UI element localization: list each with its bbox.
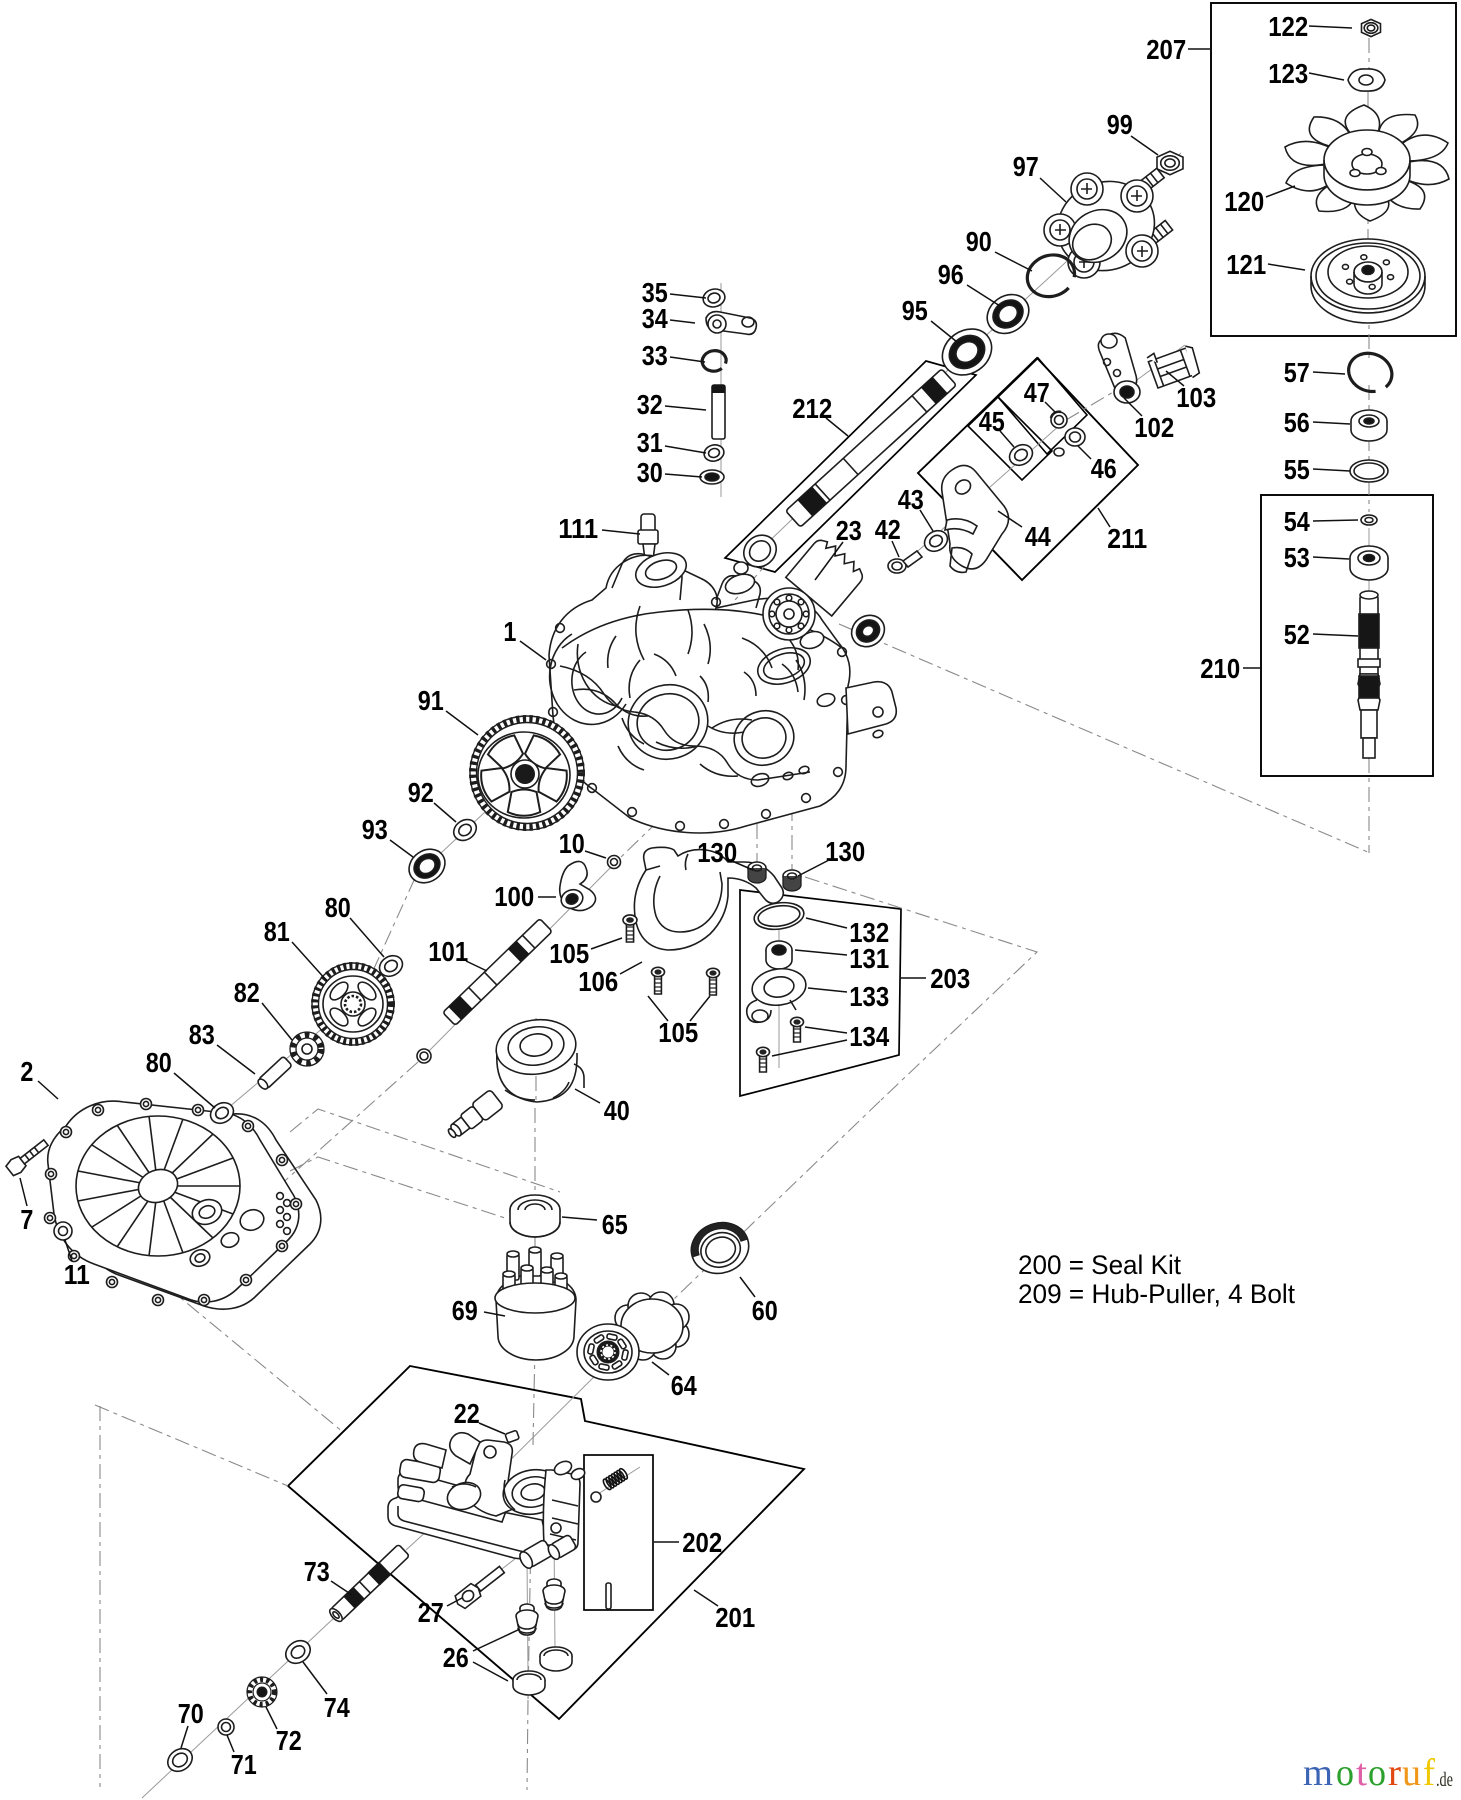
svg-text:200 = Seal Kit: 200 = Seal Kit: [1018, 1250, 1181, 1280]
svg-text:96: 96: [938, 259, 964, 290]
svg-text:7: 7: [20, 1204, 33, 1235]
svg-text:131: 131: [849, 943, 889, 974]
svg-text:m: m: [1303, 1752, 1333, 1794]
svg-text:130: 130: [825, 836, 865, 867]
svg-text:92: 92: [408, 777, 434, 808]
svg-text:69: 69: [452, 1295, 478, 1326]
svg-text:73: 73: [304, 1556, 330, 1587]
svg-text:32: 32: [637, 389, 663, 420]
svg-text:56: 56: [1284, 407, 1310, 438]
svg-text:55: 55: [1284, 454, 1310, 485]
svg-text:65: 65: [602, 1209, 628, 1240]
svg-text:46: 46: [1091, 453, 1117, 484]
svg-text:100: 100: [494, 881, 534, 912]
svg-text:120: 120: [1224, 186, 1264, 217]
svg-text:102: 102: [1134, 412, 1174, 443]
svg-text:106: 106: [578, 966, 618, 997]
svg-text:111: 111: [558, 513, 598, 544]
svg-text:91: 91: [418, 685, 444, 716]
svg-text:f: f: [1423, 1752, 1435, 1794]
svg-text:80: 80: [146, 1047, 172, 1078]
svg-text:64: 64: [671, 1370, 697, 1401]
svg-text:201: 201: [715, 1602, 755, 1633]
svg-text:212: 212: [792, 393, 832, 424]
svg-text:133: 133: [849, 981, 889, 1012]
svg-text:103: 103: [1176, 382, 1216, 413]
svg-text:71: 71: [231, 1749, 257, 1780]
svg-text:22: 22: [454, 1398, 480, 1429]
svg-text:80: 80: [325, 892, 351, 923]
svg-text:82: 82: [234, 977, 260, 1008]
svg-text:.de: .de: [1436, 1769, 1453, 1791]
svg-text:70: 70: [178, 1698, 204, 1729]
svg-text:54: 54: [1284, 506, 1310, 537]
svg-text:44: 44: [1025, 521, 1051, 552]
svg-text:130: 130: [697, 837, 737, 868]
svg-text:211: 211: [1107, 523, 1147, 554]
svg-text:209 = Hub-Puller, 4 Bolt: 209 = Hub-Puller, 4 Bolt: [1018, 1279, 1295, 1309]
svg-text:53: 53: [1284, 542, 1310, 573]
svg-text:101: 101: [428, 936, 468, 967]
svg-text:93: 93: [362, 814, 388, 845]
svg-text:99: 99: [1107, 109, 1133, 140]
svg-text:33: 33: [642, 340, 668, 371]
svg-text:1: 1: [503, 616, 516, 647]
svg-text:34: 34: [642, 303, 668, 334]
svg-text:121: 121: [1226, 249, 1266, 280]
svg-text:42: 42: [875, 514, 901, 545]
svg-text:57: 57: [1284, 357, 1310, 388]
svg-text:72: 72: [276, 1725, 302, 1756]
svg-text:90: 90: [966, 226, 992, 257]
svg-text:74: 74: [324, 1692, 350, 1723]
svg-text:83: 83: [189, 1019, 215, 1050]
svg-text:r: r: [1388, 1752, 1401, 1794]
svg-text:27: 27: [418, 1597, 444, 1628]
svg-text:81: 81: [264, 916, 290, 947]
svg-text:2: 2: [20, 1056, 33, 1087]
svg-text:26: 26: [443, 1642, 469, 1673]
svg-text:202: 202: [682, 1527, 722, 1558]
svg-text:t: t: [1356, 1752, 1367, 1794]
svg-text:210: 210: [1200, 653, 1240, 684]
svg-text:105: 105: [658, 1017, 698, 1048]
svg-text:o: o: [1368, 1752, 1386, 1794]
svg-text:52: 52: [1284, 619, 1310, 650]
svg-text:o: o: [1336, 1752, 1354, 1794]
svg-text:123: 123: [1268, 58, 1308, 89]
svg-text:31: 31: [637, 427, 663, 458]
svg-text:134: 134: [849, 1021, 889, 1052]
svg-text:203: 203: [930, 963, 970, 994]
svg-text:60: 60: [752, 1295, 778, 1326]
svg-text:10: 10: [559, 828, 585, 859]
svg-text:11: 11: [64, 1259, 90, 1290]
svg-text:207: 207: [1146, 34, 1186, 65]
svg-text:30: 30: [637, 457, 663, 488]
svg-text:122: 122: [1268, 11, 1308, 42]
svg-text:23: 23: [836, 515, 862, 546]
svg-text:97: 97: [1013, 151, 1039, 182]
svg-text:95: 95: [902, 295, 928, 326]
svg-text:u: u: [1402, 1752, 1421, 1794]
svg-text:105: 105: [549, 938, 589, 969]
svg-text:40: 40: [604, 1095, 630, 1126]
